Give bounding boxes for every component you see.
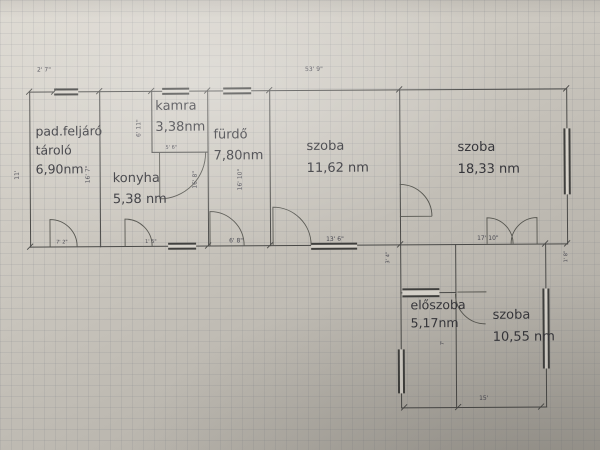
- floor-plan-photo: pad.feljáró tároló 6,90nm kamra 3,38nm k…: [0, 0, 600, 450]
- room-name: fürdő: [213, 127, 247, 142]
- room-area: 5,17nm: [411, 314, 466, 332]
- door-swing-arcs: [0, 0, 600, 450]
- dim-bottom-total: 15': [479, 396, 488, 402]
- dim-kamra-left: 6' 11": [136, 119, 142, 137]
- dim-eloszoba-small: 7': [440, 341, 446, 346]
- room-label-eloszoba: előszoba 5,17nm: [410, 296, 465, 332]
- dim-furdo-bottom: 6' 8": [229, 238, 243, 244]
- room-name: tároló: [35, 142, 71, 157]
- room-area: 10,55 nm: [493, 326, 555, 348]
- dim-tarolo-right: 16' 7": [86, 165, 92, 183]
- dimension-ticks: [26, 85, 571, 412]
- dim-kamra-bottom: 5' 6": [166, 145, 178, 151]
- dim-tarolo-door: 7' 2": [56, 239, 68, 245]
- dim-furdo-right: 16' 10": [238, 169, 244, 191]
- dim-top-small: 2' 7": [37, 68, 51, 74]
- room-label-kamra: kamra 3,38nm: [155, 96, 205, 138]
- dim-szoba1-bottom: 13' 6": [326, 237, 344, 243]
- room-label-szoba3: szoba 10,55 nm: [492, 304, 555, 348]
- room-name: kamra: [155, 99, 196, 114]
- room-area: 11,62 nm: [307, 158, 369, 180]
- room-label-szoba1: szoba 11,62 nm: [306, 136, 369, 180]
- room-area: 18,33 nm: [458, 159, 520, 181]
- dim-konyha-door: 1' 5": [145, 239, 157, 245]
- dim-left-height: 11': [15, 170, 21, 179]
- room-label-furdo: fürdő 7,80nm: [213, 124, 263, 166]
- dim-furdo-left: 16' 8": [193, 171, 199, 189]
- room-area: 5,38 nm: [113, 189, 167, 210]
- dim-szoba2-bottom: 17' 10": [477, 236, 499, 242]
- room-label-tarolo: pad.feljáró tároló 6,90nm: [35, 121, 102, 178]
- room-area: 7,80nm: [214, 145, 264, 166]
- room-name: pad.feljáró: [35, 123, 102, 138]
- room-name: szoba: [457, 140, 495, 155]
- floor-plan-drawing: pad.feljáró tároló 6,90nm kamra 3,38nm k…: [0, 0, 600, 450]
- room-area: 6,90nm: [36, 159, 103, 178]
- room-name: szoba: [306, 139, 344, 154]
- room-name: konyha: [113, 171, 160, 186]
- dim-top-total: 53' 9": [305, 67, 323, 73]
- dim-lower-left-small: 3' 4": [385, 252, 391, 264]
- room-label-konyha: konyha 5,38 nm: [113, 168, 167, 210]
- room-name: előszoba: [410, 297, 465, 312]
- room-area: 3,38nm: [155, 117, 205, 138]
- room-label-szoba2: szoba 18,33 nm: [457, 137, 520, 181]
- room-name: szoba: [493, 308, 531, 323]
- dim-right-stub: 1' 8": [563, 251, 569, 263]
